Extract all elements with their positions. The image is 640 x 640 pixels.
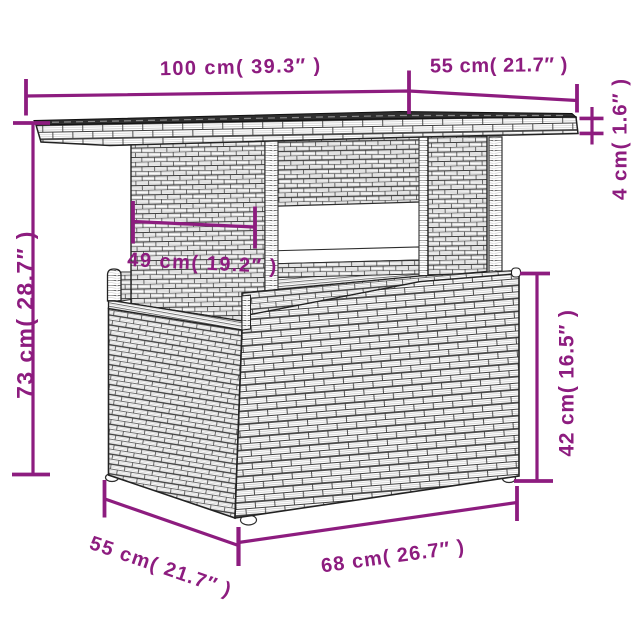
svg-text:42 cm( 16.5″ ): 42 cm( 16.5″ ) <box>556 309 579 456</box>
svg-text:55 cm( 21.7″ ): 55 cm( 21.7″ ) <box>430 54 568 77</box>
svg-text:73 cm( 28.7″ ): 73 cm( 28.7″ ) <box>12 230 38 399</box>
svg-text:100 cm( 39.3″ ): 100 cm( 39.3″ ) <box>160 55 322 81</box>
svg-text:4 cm( 1.6″ ): 4 cm( 1.6″ ) <box>609 78 632 200</box>
